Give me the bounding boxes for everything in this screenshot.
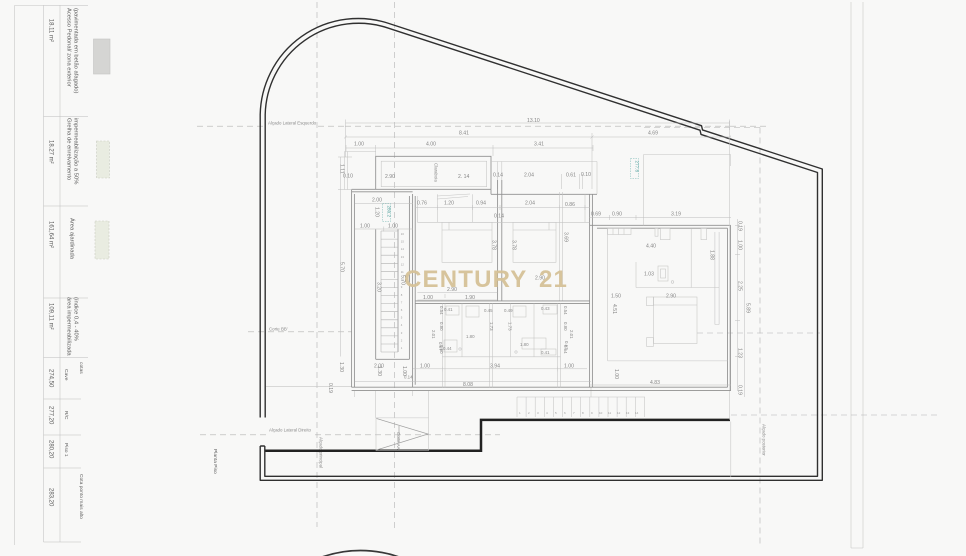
svg-text:Alçado posterior: Alçado posterior <box>762 424 767 456</box>
svg-text:283,20: 283,20 <box>48 488 54 507</box>
svg-text:3.41: 3.41 <box>534 142 544 148</box>
svg-text:impermeabilização a 50%: impermeabilização a 50% <box>72 118 78 184</box>
svg-text:274,50: 274,50 <box>48 369 54 388</box>
svg-text:0.10: 0.10 <box>581 172 591 178</box>
svg-text:Alçado principal: Alçado principal <box>319 437 324 468</box>
svg-text:(pavimentada em betão afagado): (pavimentada em betão afagado) <box>72 8 78 93</box>
svg-text:2.90: 2.90 <box>666 294 676 300</box>
svg-text:1.73: 1.73 <box>489 322 494 331</box>
svg-text:Alçado Lateral Direito: Alçado Lateral Direito <box>269 428 312 433</box>
svg-text:0.14: 0.14 <box>493 173 503 179</box>
svg-text:2.90: 2.90 <box>535 276 545 282</box>
svg-text:0.41: 0.41 <box>444 307 453 312</box>
svg-text:1.88: 1.88 <box>709 250 715 260</box>
svg-text:1.00: 1.00 <box>420 364 430 370</box>
svg-text:0.67: 0.67 <box>438 342 443 351</box>
svg-text:(índice 0,4 - 40%: (índice 0,4 - 40% <box>72 297 78 341</box>
svg-text:18.27 m²: 18.27 m² <box>48 140 54 164</box>
svg-text:1.20: 1.20 <box>374 207 380 217</box>
svg-text:5.70: 5.70 <box>400 275 406 285</box>
svg-text:0.86: 0.86 <box>565 202 575 208</box>
svg-text:0.41: 0.41 <box>541 350 550 355</box>
svg-text:0.19: 0.19 <box>737 385 743 395</box>
svg-text:Planta Piso: Planta Piso <box>212 449 218 474</box>
svg-text:2.04: 2.04 <box>525 201 535 207</box>
svg-text:0.19: 0.19 <box>327 383 333 393</box>
svg-text:2.25: 2.25 <box>737 281 743 291</box>
svg-text:4.40: 4.40 <box>646 244 656 250</box>
svg-text:1.50: 1.50 <box>611 294 621 300</box>
svg-text:2.00: 2.00 <box>372 198 382 204</box>
svg-text:1.00: 1.00 <box>388 224 398 230</box>
svg-text:11: 11 <box>608 411 611 415</box>
svg-text:8.41: 8.41 <box>459 131 469 137</box>
svg-text:14: 14 <box>635 411 639 415</box>
svg-text:3.94: 3.94 <box>490 364 500 370</box>
svg-text:12: 12 <box>617 411 621 415</box>
svg-text:0.90: 0.90 <box>612 212 622 218</box>
svg-text:0.43: 0.43 <box>541 306 550 311</box>
svg-text:1.80: 1.80 <box>520 342 529 347</box>
svg-text:1.00: 1.00 <box>354 142 364 148</box>
svg-text:18.11 m²: 18.11 m² <box>48 19 54 42</box>
svg-text:3.20: 3.20 <box>376 282 382 292</box>
svg-text:8.08: 8.08 <box>463 382 473 388</box>
svg-text:0.54: 0.54 <box>563 306 568 315</box>
svg-text:14: 14 <box>401 247 405 251</box>
svg-text:4.00: 4.00 <box>426 142 436 148</box>
svg-text:0.19: 0.19 <box>737 221 743 231</box>
svg-text:277,20: 277,20 <box>48 406 54 425</box>
svg-text:13.10: 13.10 <box>527 118 540 124</box>
svg-text:10: 10 <box>599 411 603 415</box>
svg-text:2. 14: 2. 14 <box>458 174 469 180</box>
svg-text:0.45: 0.45 <box>484 308 493 313</box>
svg-text:0.10: 0.10 <box>343 174 353 180</box>
svg-text:R/C: R/C <box>63 411 69 420</box>
svg-text:0.14: 0.14 <box>404 375 413 380</box>
svg-text:1.11: 1.11 <box>339 164 345 174</box>
svg-text:13: 13 <box>626 411 630 415</box>
svg-text:1.00: 1.00 <box>737 240 743 250</box>
svg-text:Grelha de enrelvamento: Grelha de enrelvamento <box>65 118 71 180</box>
svg-text:1.00: 1.00 <box>360 224 370 230</box>
svg-text:1.30: 1.30 <box>338 362 344 372</box>
svg-text:3.78: 3.78 <box>491 240 497 250</box>
svg-text:0.76: 0.76 <box>417 201 427 207</box>
svg-text:109,11 m²: 109,11 m² <box>48 303 54 330</box>
svg-text:4.51: 4.51 <box>611 304 617 314</box>
svg-text:Acesso Pedonal/ zona exterior: Acesso Pedonal/ zona exterior <box>65 8 71 87</box>
svg-text:161,64 m²: 161,64 m² <box>48 221 54 248</box>
svg-text:0.69: 0.69 <box>591 212 601 218</box>
svg-text:280.2: 280.2 <box>387 206 392 218</box>
svg-text:4.69: 4.69 <box>648 131 658 137</box>
svg-text:2.90: 2.90 <box>385 174 395 180</box>
svg-text:3.69: 3.69 <box>563 232 569 242</box>
svg-text:3.78: 3.78 <box>511 240 517 250</box>
svg-text:2.04: 2.04 <box>524 173 534 179</box>
svg-text:área impermeabilizada: área impermeabilizada <box>65 297 71 356</box>
svg-text:1.00: 1.00 <box>564 364 574 370</box>
svg-text:0.67: 0.67 <box>564 341 569 350</box>
svg-text:1.00: 1.00 <box>613 369 619 379</box>
svg-text:1.03: 1.03 <box>644 272 654 278</box>
svg-text:Área ajardinada: Área ajardinada <box>69 218 76 260</box>
svg-text:2.90: 2.90 <box>447 287 457 293</box>
svg-text:CENTURY: CENTURY <box>404 266 528 293</box>
svg-text:1.80: 1.80 <box>466 334 475 339</box>
svg-text:Cota ponto mais alto: Cota ponto mais alto <box>78 474 84 519</box>
svg-text:277.8: 277.8 <box>635 161 640 173</box>
svg-text:5.70: 5.70 <box>339 262 345 272</box>
svg-text:280,20: 280,20 <box>48 440 54 459</box>
svg-text:3.19: 3.19 <box>671 212 681 218</box>
svg-text:Cave: Cave <box>63 369 69 381</box>
svg-text:1.20: 1.20 <box>444 201 454 207</box>
svg-text:Corte BB': Corte BB' <box>269 327 288 332</box>
svg-text:0.80: 0.80 <box>563 322 568 331</box>
svg-text:1.23: 1.23 <box>737 348 743 358</box>
svg-text:2.01: 2.01 <box>569 330 574 339</box>
svg-text:Alçado Lateral Esquerdo: Alçado Lateral Esquerdo <box>268 121 317 126</box>
svg-text:0.80: 0.80 <box>439 322 444 331</box>
svg-text:13: 13 <box>401 255 405 259</box>
svg-text:1.30: 1.30 <box>376 366 382 376</box>
svg-text:Claraboia: Claraboia <box>434 163 439 182</box>
svg-text:15: 15 <box>401 240 405 244</box>
svg-text:5.89: 5.89 <box>745 303 751 313</box>
svg-text:0.61: 0.61 <box>566 173 576 179</box>
svg-text:2.01: 2.01 <box>431 330 436 339</box>
svg-text:0.94: 0.94 <box>476 201 486 207</box>
svg-text:0.14: 0.14 <box>494 214 504 220</box>
svg-text:1.73: 1.73 <box>508 322 513 331</box>
svg-text:Piso 1: Piso 1 <box>63 443 69 457</box>
svg-text:16: 16 <box>401 232 405 236</box>
svg-text:4.83: 4.83 <box>650 380 660 386</box>
svg-text:0.49: 0.49 <box>504 308 513 313</box>
svg-text:cotas: cotas <box>78 362 84 374</box>
